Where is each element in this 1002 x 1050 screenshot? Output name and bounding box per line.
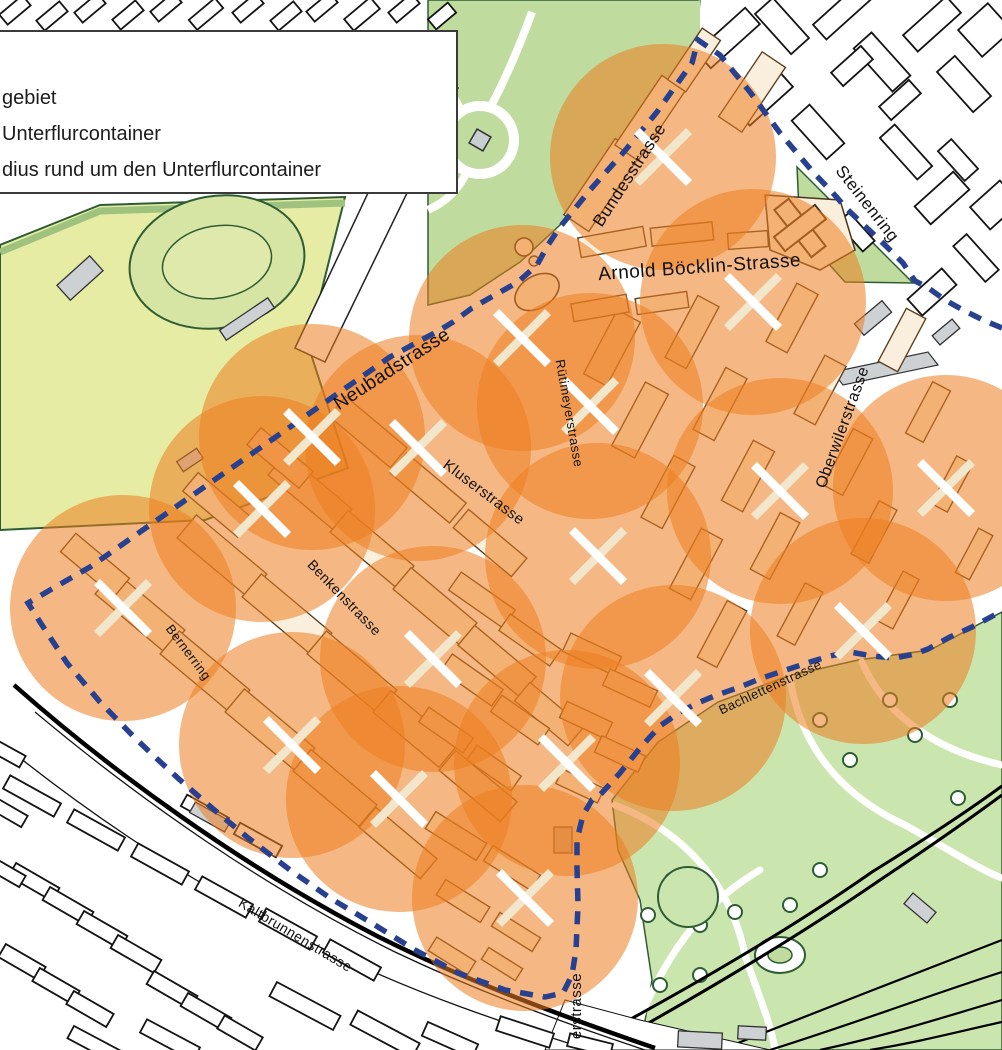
street-label-erstrasse: erstrasse [568, 973, 585, 1039]
map-canvas: BundesstrasseSteinenringArnold Böcklin-S… [0, 0, 1002, 1050]
legend-item-radius: dius rund um den Unterflurcontainer [2, 159, 321, 181]
legend-item-pilot-area: gebiet [2, 87, 57, 109]
legend: gebiet Unterflurcontainer dius rund um d… [0, 31, 457, 193]
legend-item-container-location: Unterflurcontainer [2, 123, 161, 145]
